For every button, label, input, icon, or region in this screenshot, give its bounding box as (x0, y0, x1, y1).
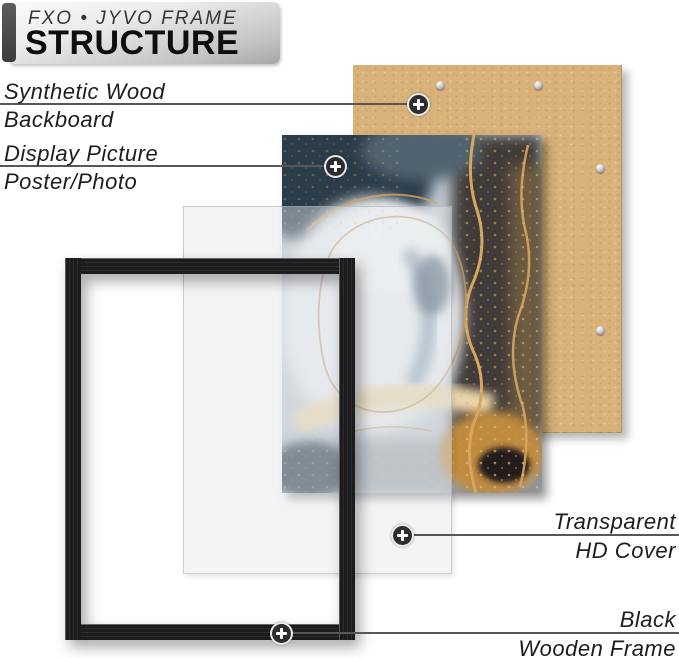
label-cover-line1: Transparent (554, 509, 676, 535)
header-accent-bar (2, 3, 16, 62)
wooden-frame-layer (65, 258, 355, 640)
label-frame-line1: Black (620, 607, 676, 633)
frame-top-bar (65, 258, 355, 274)
label-backboard-line1: Synthetic Wood (4, 79, 165, 105)
plus-marker-icon (407, 93, 430, 116)
screw-icon (596, 326, 605, 335)
label-picture-line1: Display Picture (4, 141, 158, 167)
label-picture-line2: Poster/Photo (4, 169, 137, 195)
screw-icon (596, 164, 605, 173)
frame-structure-diagram: FXO • JYVO FRAME STRUCTURE (0, 0, 679, 658)
label-backboard-line2: Backboard (4, 107, 114, 133)
screw-icon (534, 81, 543, 90)
plus-marker-icon (270, 622, 293, 645)
label-cover-line2: HD Cover (575, 538, 676, 564)
plus-marker-icon (391, 524, 414, 547)
frame-left-bar (65, 258, 81, 640)
plus-marker-icon (324, 155, 347, 178)
label-frame-line2: Wooden Frame (518, 636, 676, 658)
screw-icon (436, 81, 445, 90)
page-title: STRUCTURE (25, 24, 239, 63)
frame-right-bar (339, 258, 355, 640)
